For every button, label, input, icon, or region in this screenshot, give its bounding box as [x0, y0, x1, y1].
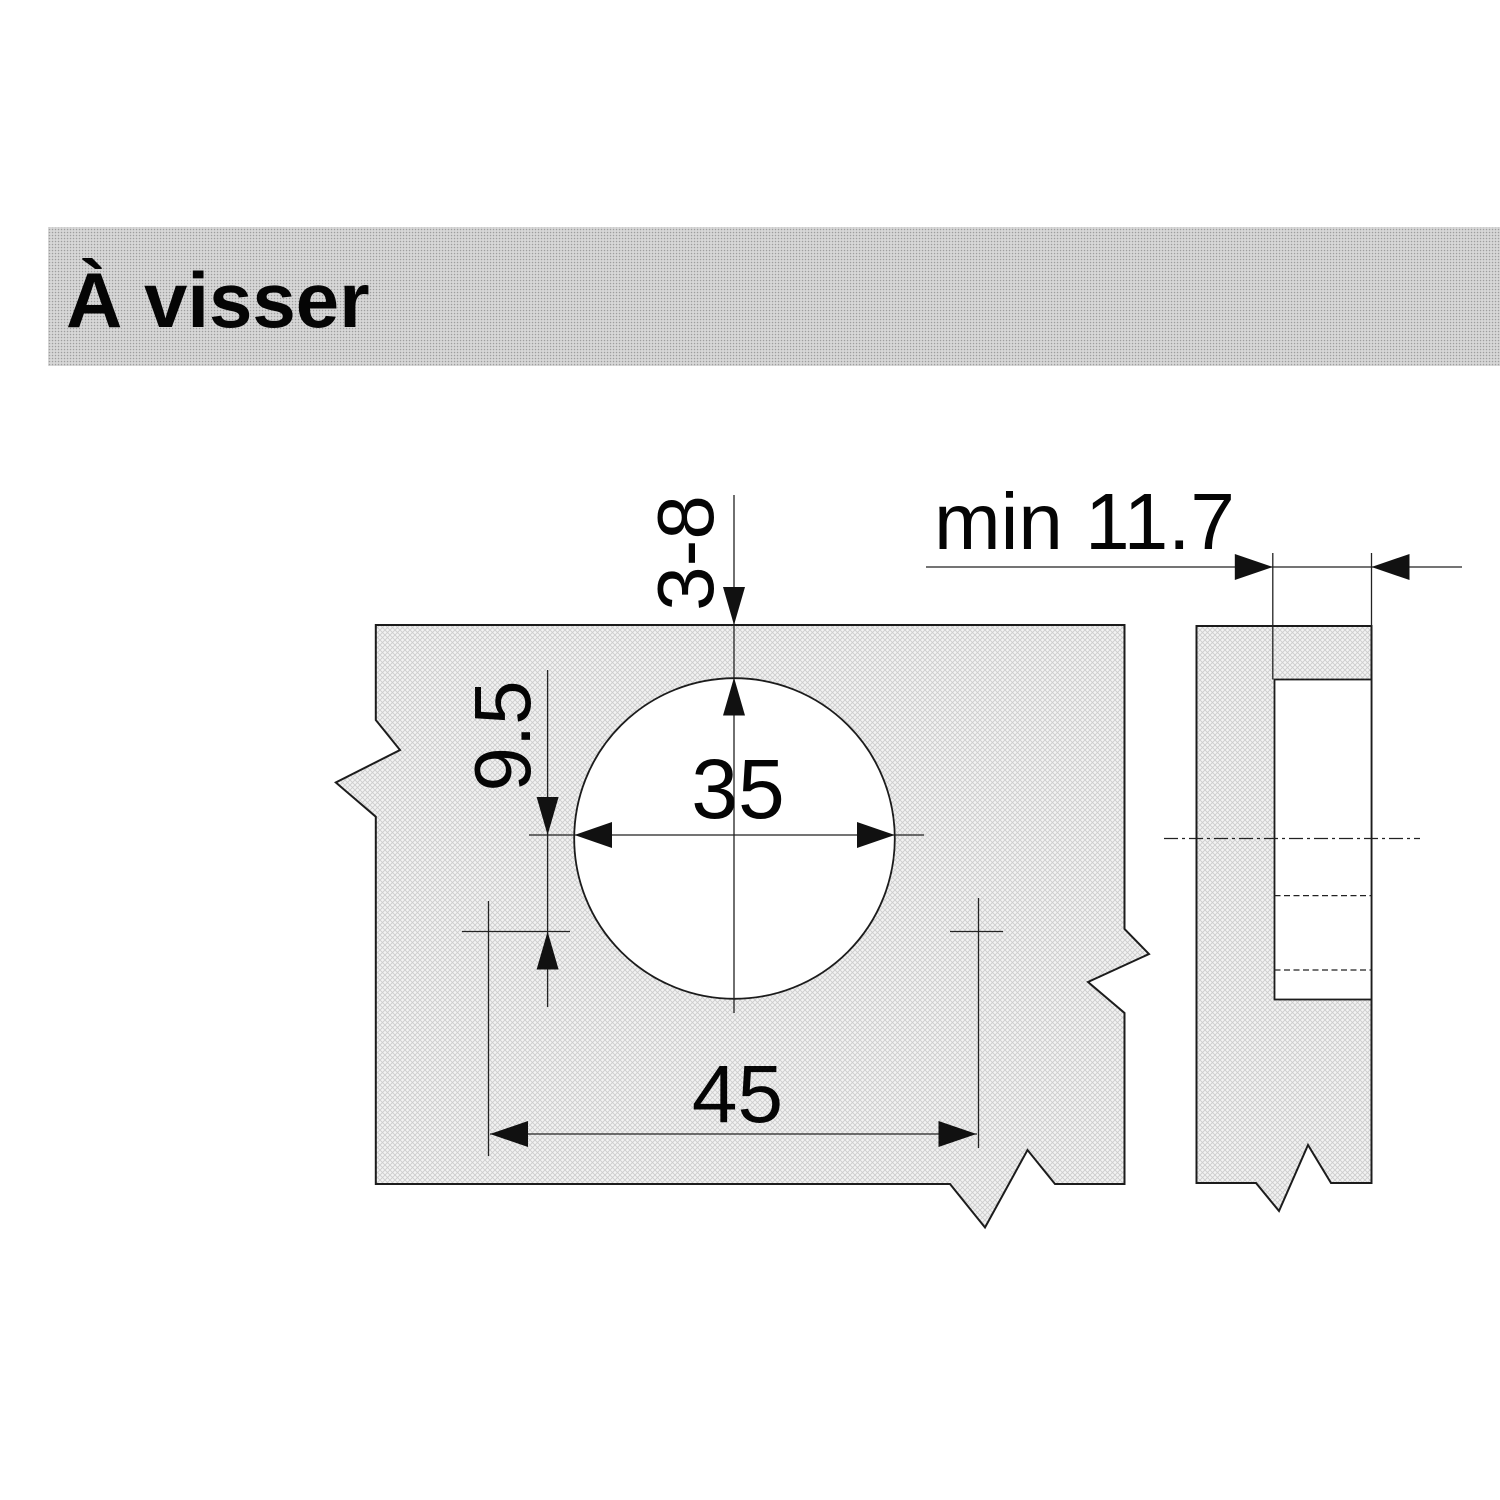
- svg-text:À visser: À visser: [66, 256, 370, 344]
- svg-text:min 11.7: min 11.7: [934, 477, 1235, 566]
- svg-text:35: 35: [691, 742, 784, 836]
- svg-text:9.5: 9.5: [458, 680, 547, 791]
- svg-text:3-8: 3-8: [641, 495, 730, 611]
- svg-text:45: 45: [692, 1049, 783, 1140]
